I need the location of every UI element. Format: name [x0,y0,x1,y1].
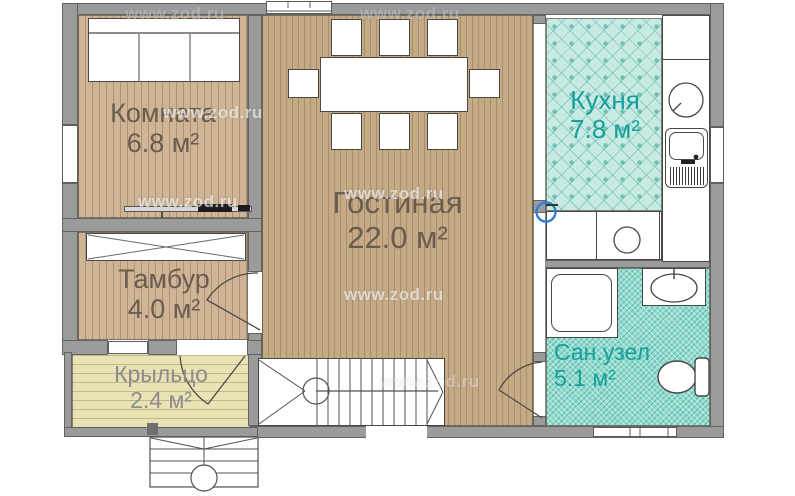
porch-wall-bottom [64,427,258,437]
opening-bottom-wall [366,426,427,438]
door-opening-porch [177,340,247,355]
wall-left-lower [62,183,78,352]
window-sanuzel-bottom [593,427,677,437]
stove [596,211,660,260]
window-komnata-left [62,125,78,183]
chair-bottom-1 [331,113,362,150]
room-floor-kryltso [72,352,250,428]
sliding-door [124,206,252,212]
sink-drainboard [670,167,704,185]
window-kitchen-right [710,127,724,183]
sliding-door-end [238,205,250,211]
chair-bottom-2 [379,113,410,150]
chair-bottom-3 [427,113,458,150]
wall-right-upper [710,3,724,127]
chair-top-3 [427,19,458,56]
wall-right-lower [710,183,724,438]
chair-right [469,69,500,98]
shower-tray [551,274,612,332]
wall-tambur-porch-c [247,340,262,355]
wall-left-upper [62,3,78,125]
wall-komnata-tambur [62,218,262,232]
washbasin-counter [642,268,706,306]
porch-corner-block [147,423,158,435]
partition-gostinaya-right [533,15,546,426]
window-top [266,1,332,14]
partition-stub-top [533,15,546,24]
wardrobe [86,233,246,261]
entrance-steps [150,437,258,491]
partition-stub-kitchen [533,200,546,213]
wall-top [62,3,724,15]
kitchen-sink-bowl [669,132,704,160]
partition-stub-bath-bottom [533,416,546,426]
wall-tambur-porch-b [148,340,177,355]
staircase [258,358,445,426]
sliding-door-handle [198,204,232,212]
wall-komnata-gostinaya [248,15,262,272]
chair-top-1 [331,19,362,56]
door-opening-tambur [248,272,262,333]
kitchen-tile-floor [546,18,662,211]
sofa [88,18,240,82]
fridge [662,15,710,60]
floor-plan: Комната 6.8 м² Гостиная 22.0 м² Кухня 7.… [0,0,795,496]
chair-left [288,69,319,98]
partition-stub-bath-top [533,352,546,362]
chair-top-2 [379,19,410,56]
porch-wall-left [64,352,72,434]
dining-table [320,57,468,112]
window-tambur-porch [108,341,148,354]
